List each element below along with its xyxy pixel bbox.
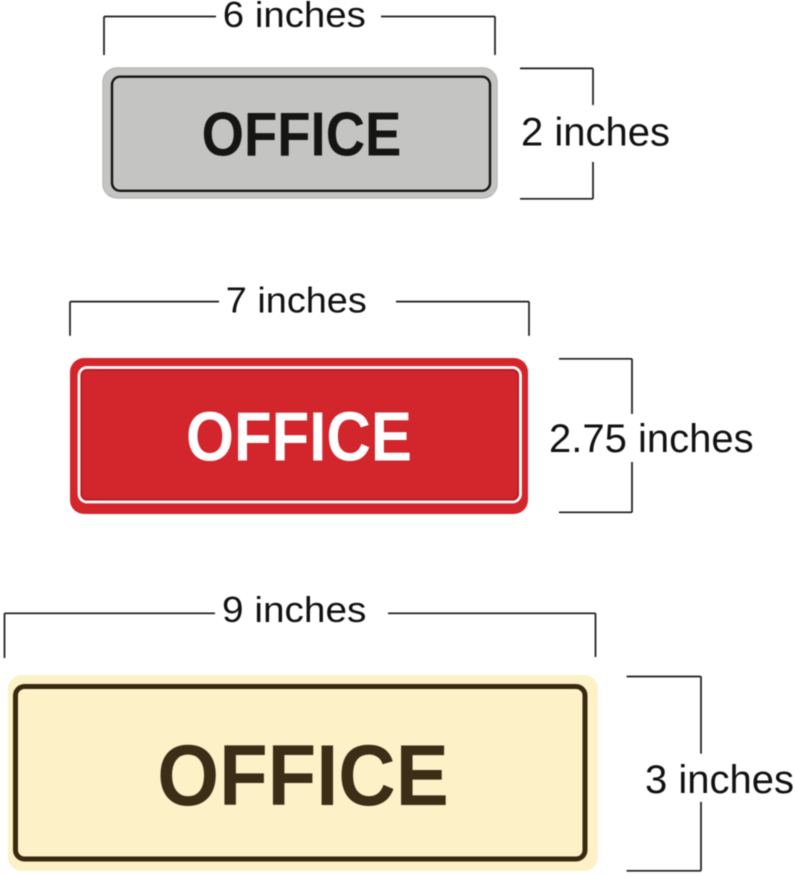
svg-text:2 inches: 2 inches	[521, 111, 670, 155]
svg-text:6 inches: 6 inches	[223, 0, 366, 35]
svg-text:9 inches: 9 inches	[222, 589, 366, 630]
svg-text:OFFICE: OFFICE	[202, 100, 402, 169]
svg-text:OFFICE: OFFICE	[186, 398, 412, 475]
svg-text:3 inches: 3 inches	[645, 758, 794, 802]
svg-text:7 inches: 7 inches	[226, 279, 367, 320]
svg-text:OFFICE: OFFICE	[157, 727, 448, 824]
svg-text:2.75 inches: 2.75 inches	[549, 417, 754, 461]
